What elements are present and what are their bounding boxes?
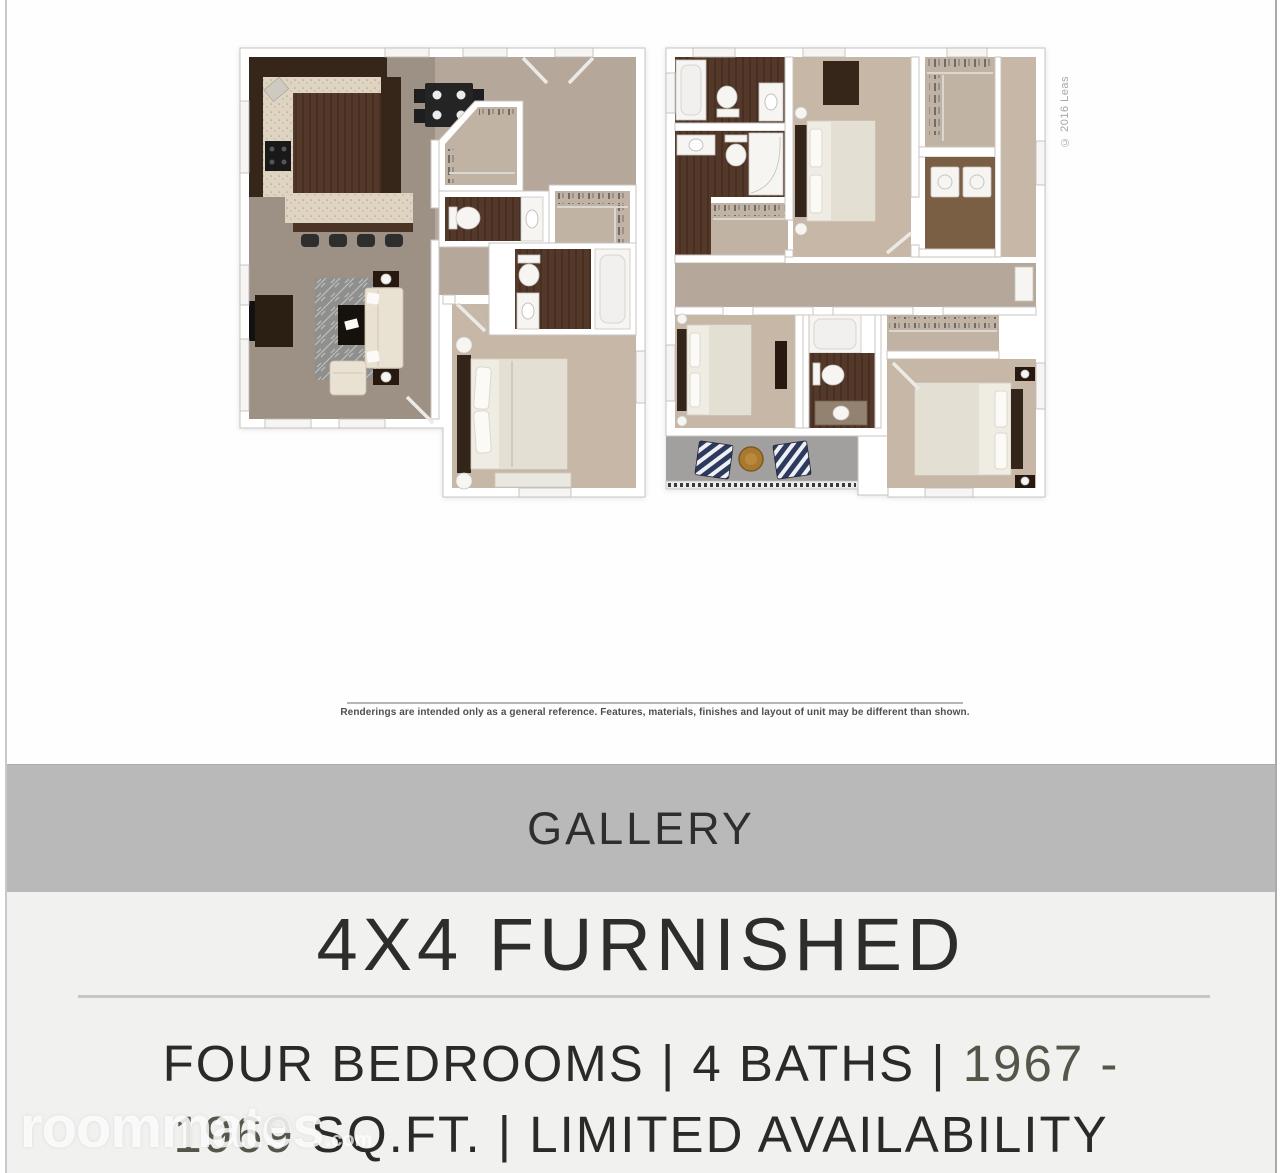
photo-copyright-text: © 2016 Leas xyxy=(1059,76,1071,148)
floorplan-image-section[interactable]: © 2016 Leas Renderings are intended only… xyxy=(7,0,1275,764)
gallery-label: GALLERY xyxy=(527,803,755,855)
listing-page: © 2016 Leas Renderings are intended only… xyxy=(0,0,1280,1173)
floor-plan-first-floor xyxy=(240,48,645,497)
page-right-border xyxy=(1275,0,1277,1173)
specs-sqft-to: 1969 xyxy=(173,1106,294,1163)
gallery-section-header: GALLERY xyxy=(7,764,1275,892)
floor-plan-second-floor xyxy=(666,48,1045,497)
photo-copyright: © 2016 Leas xyxy=(1057,0,1077,152)
disclaimer-divider xyxy=(347,702,963,704)
unit-specs: FOUR BEDROOMS | 4 BATHS | 1967 - 1969 SQ… xyxy=(7,1028,1275,1170)
specs-availability: SQ.FT. | LIMITED AVAILABILITY xyxy=(295,1106,1109,1163)
specs-sqft-from: 1967 - xyxy=(963,1035,1120,1092)
unit-specs-line-2: 1969 SQ.FT. | LIMITED AVAILABILITY xyxy=(7,1099,1275,1170)
title-divider xyxy=(78,995,1210,998)
renderings-disclaimer: Renderings are intended only as a genera… xyxy=(247,707,1063,718)
unit-details-section: 4X4 FURNISHED FOUR BEDROOMS | 4 BATHS | … xyxy=(7,892,1275,1173)
specs-beds-baths: FOUR BEDROOMS | 4 BATHS | xyxy=(163,1035,963,1092)
floorplan-render xyxy=(7,0,1275,764)
unit-specs-line-1: FOUR BEDROOMS | 4 BATHS | 1967 - xyxy=(7,1028,1275,1099)
unit-title: 4X4 FURNISHED xyxy=(7,902,1275,987)
